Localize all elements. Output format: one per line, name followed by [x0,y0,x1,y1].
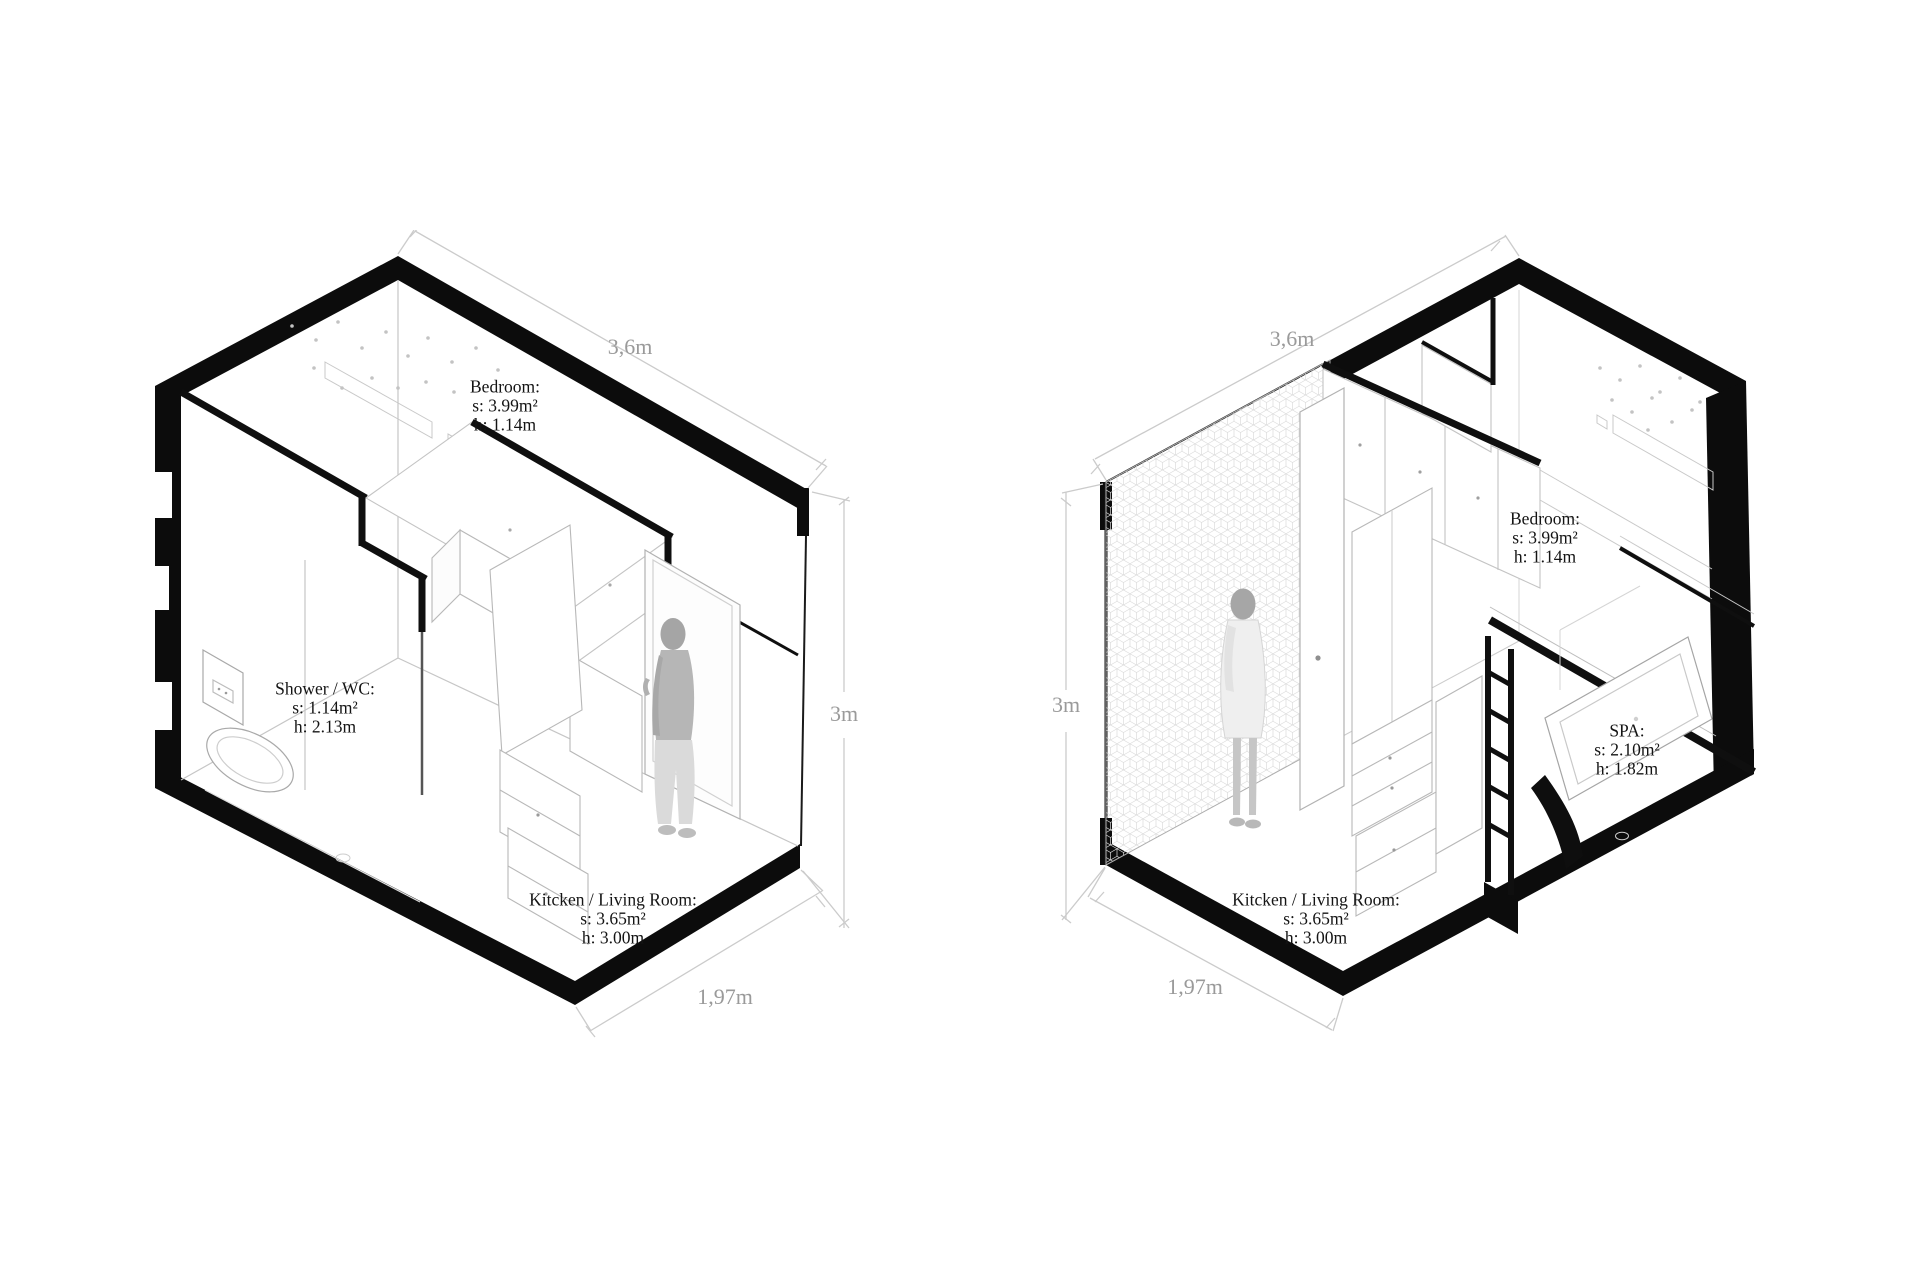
room-label-spa: SPA: s: 2.10m² h: 1.82m [1594,722,1660,779]
room-label-line: s: 2.10m² [1594,741,1660,760]
dimension-width-left: 3,6m [608,334,653,360]
room-label-line: h: 2.13m [275,718,375,737]
room-label-line: s: 3.99m² [1510,529,1580,548]
room-label-line: s: 3.65m² [1232,910,1400,929]
room-label-line: Kitcken / Living Room: [529,891,697,910]
room-label-line: Bedroom: [1510,510,1580,529]
room-label-line: s: 1.14m² [275,699,375,718]
dimension-depth-right: 1,97m [1167,974,1223,1000]
room-label-line: Shower / WC: [275,680,375,699]
room-label-line: h: 1.82m [1594,760,1660,779]
room-label-line: s: 3.99m² [470,397,540,416]
shower-drain [336,854,350,862]
room-label-line: h: 1.14m [1510,548,1580,567]
room-label-kitchen-right: Kitcken / Living Room: s: 3.65m² h: 3.00… [1232,891,1400,948]
dimension-depth-left: 1,97m [697,984,753,1010]
room-label-line: SPA: [1594,722,1660,741]
textured-wall [1106,360,1330,865]
room-label-line: Bedroom: [470,378,540,397]
room-label-kitchen-left: Kitcken / Living Room: s: 3.65m² h: 3.00… [529,891,697,948]
right-unit-axonometric-drawing [1000,230,1810,1060]
room-label-line: h: 3.00m [529,929,697,948]
room-label-line: s: 3.65m² [529,910,697,929]
room-label-bedroom-left: Bedroom: s: 3.99m² h: 1.14m [470,378,540,435]
dimension-height-left: 3m [830,701,858,727]
left-unit-axonometric-drawing [110,230,910,1060]
ladder [1488,636,1511,895]
wardrobe-door-panel [1300,388,1344,810]
room-label-line: Kitcken / Living Room: [1232,891,1400,910]
room-label-line: h: 3.00m [1232,929,1400,948]
dimension-height-right: 3m [1052,692,1080,718]
left-pegboard-dots [290,320,500,394]
architectural-diagram-canvas: Bedroom: s: 3.99m² h: 1.14m Shower / WC:… [0,0,1920,1279]
left-open-edge [801,536,806,846]
room-label-bedroom-right: Bedroom: s: 3.99m² h: 1.14m [1510,510,1580,567]
left-kitchen-cabinets [432,525,642,944]
dimension-width-right: 3,6m [1270,326,1315,352]
room-label-line: h: 1.14m [470,416,540,435]
room-label-shower-wc: Shower / WC: s: 1.14m² h: 2.13m [275,680,375,737]
